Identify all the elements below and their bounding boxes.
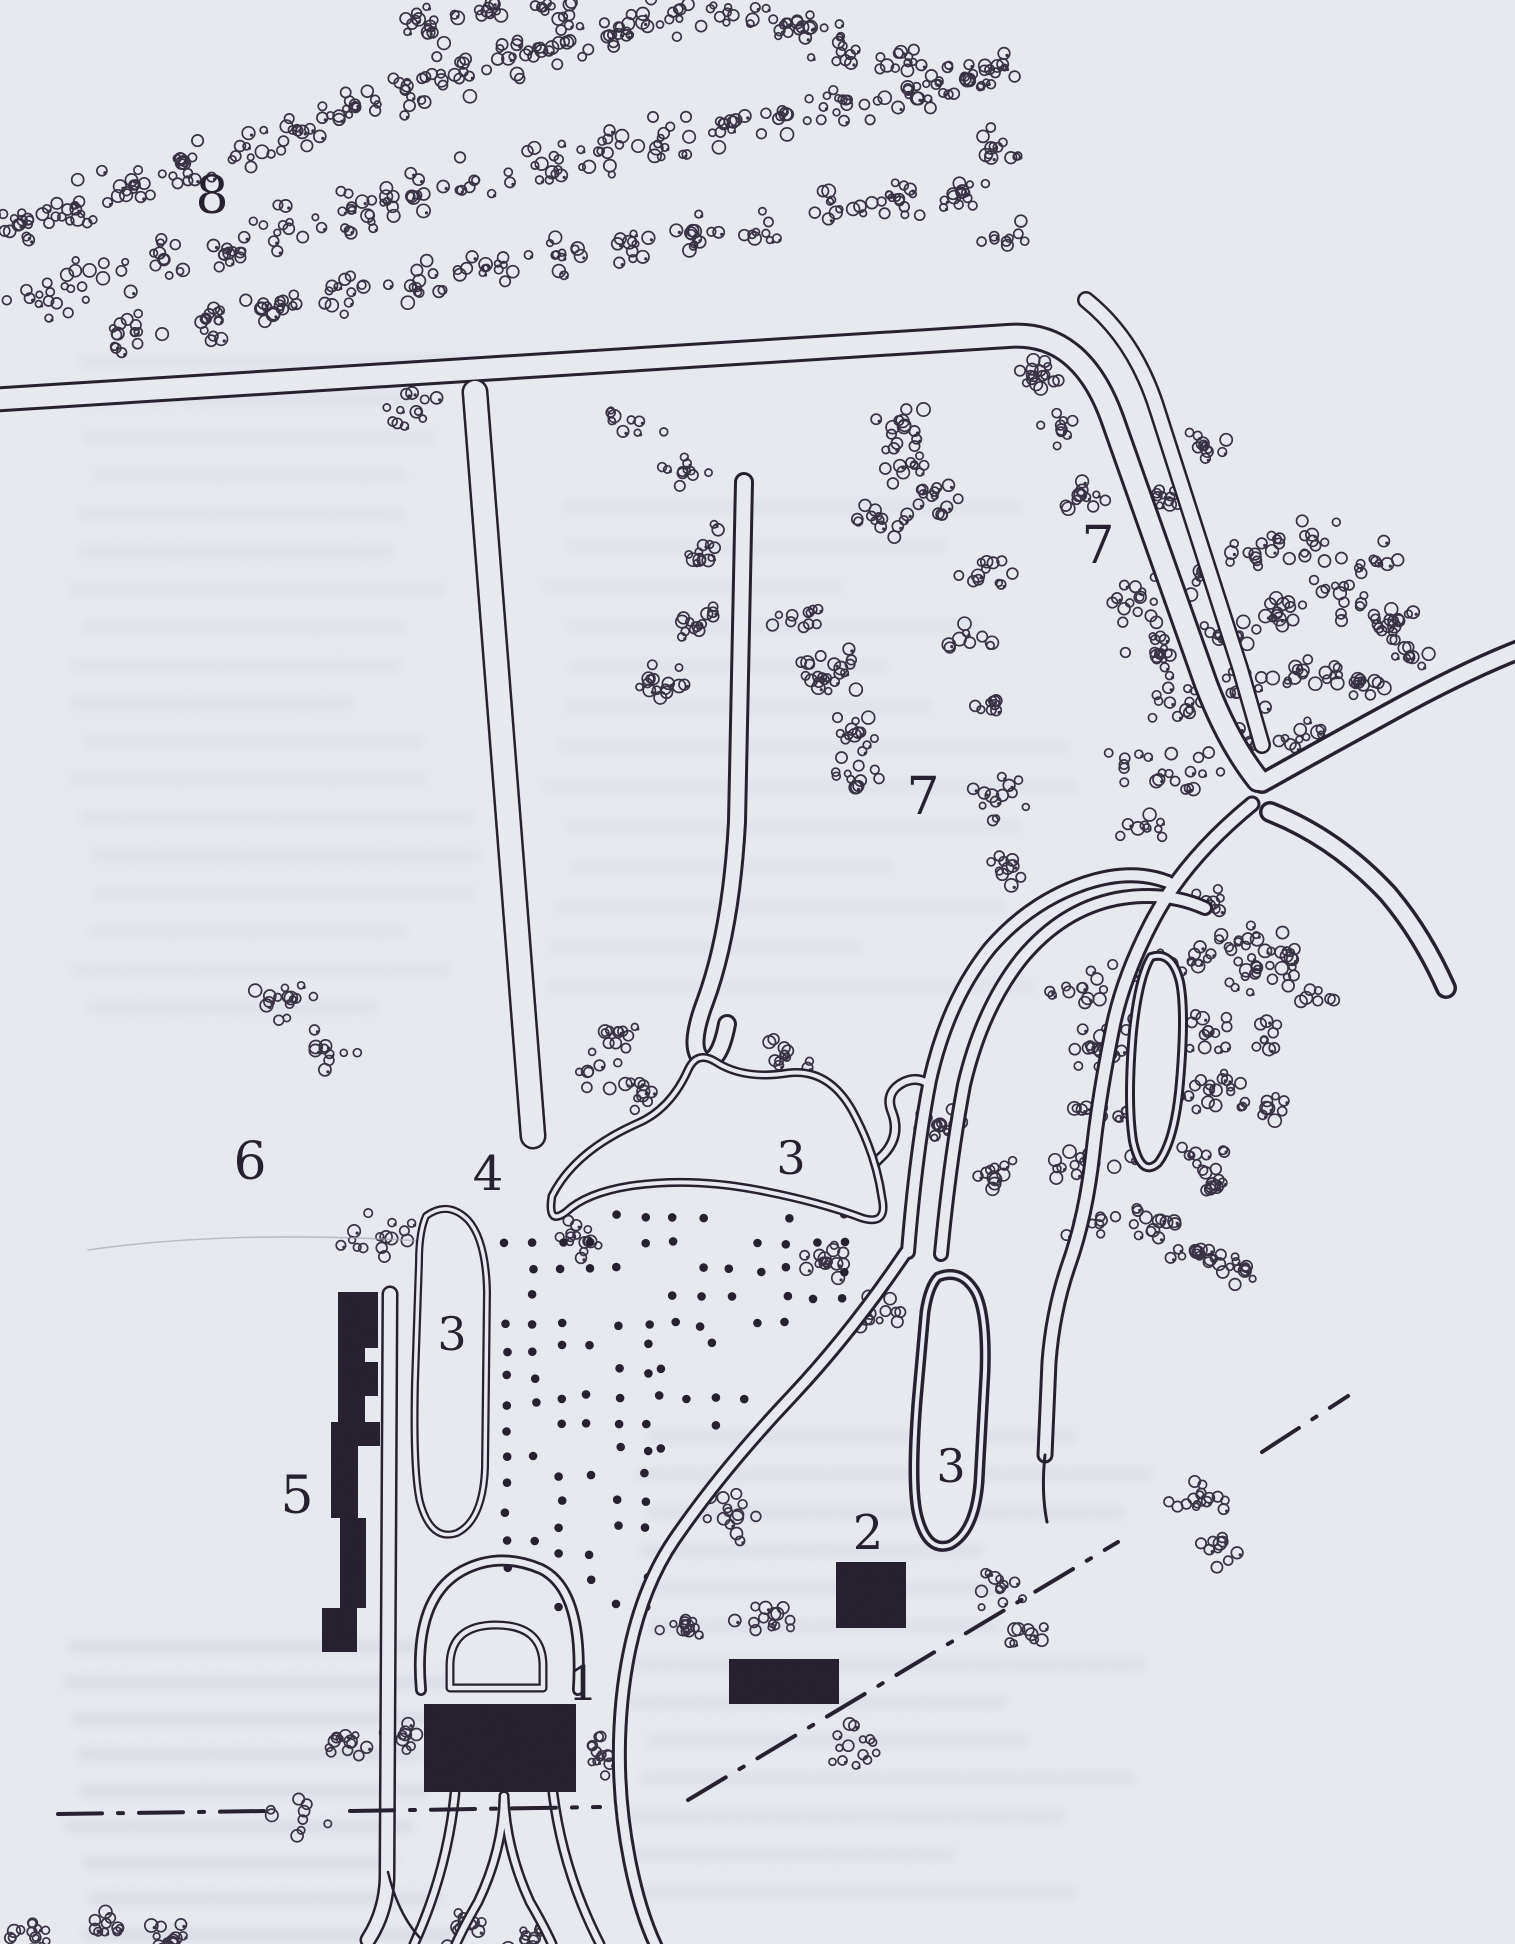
paper-grain-overlay	[0, 0, 1515, 1944]
park-plan-figure: 87763334521	[0, 0, 1515, 1944]
park-plan-svg: 87763334521	[0, 0, 1515, 1944]
